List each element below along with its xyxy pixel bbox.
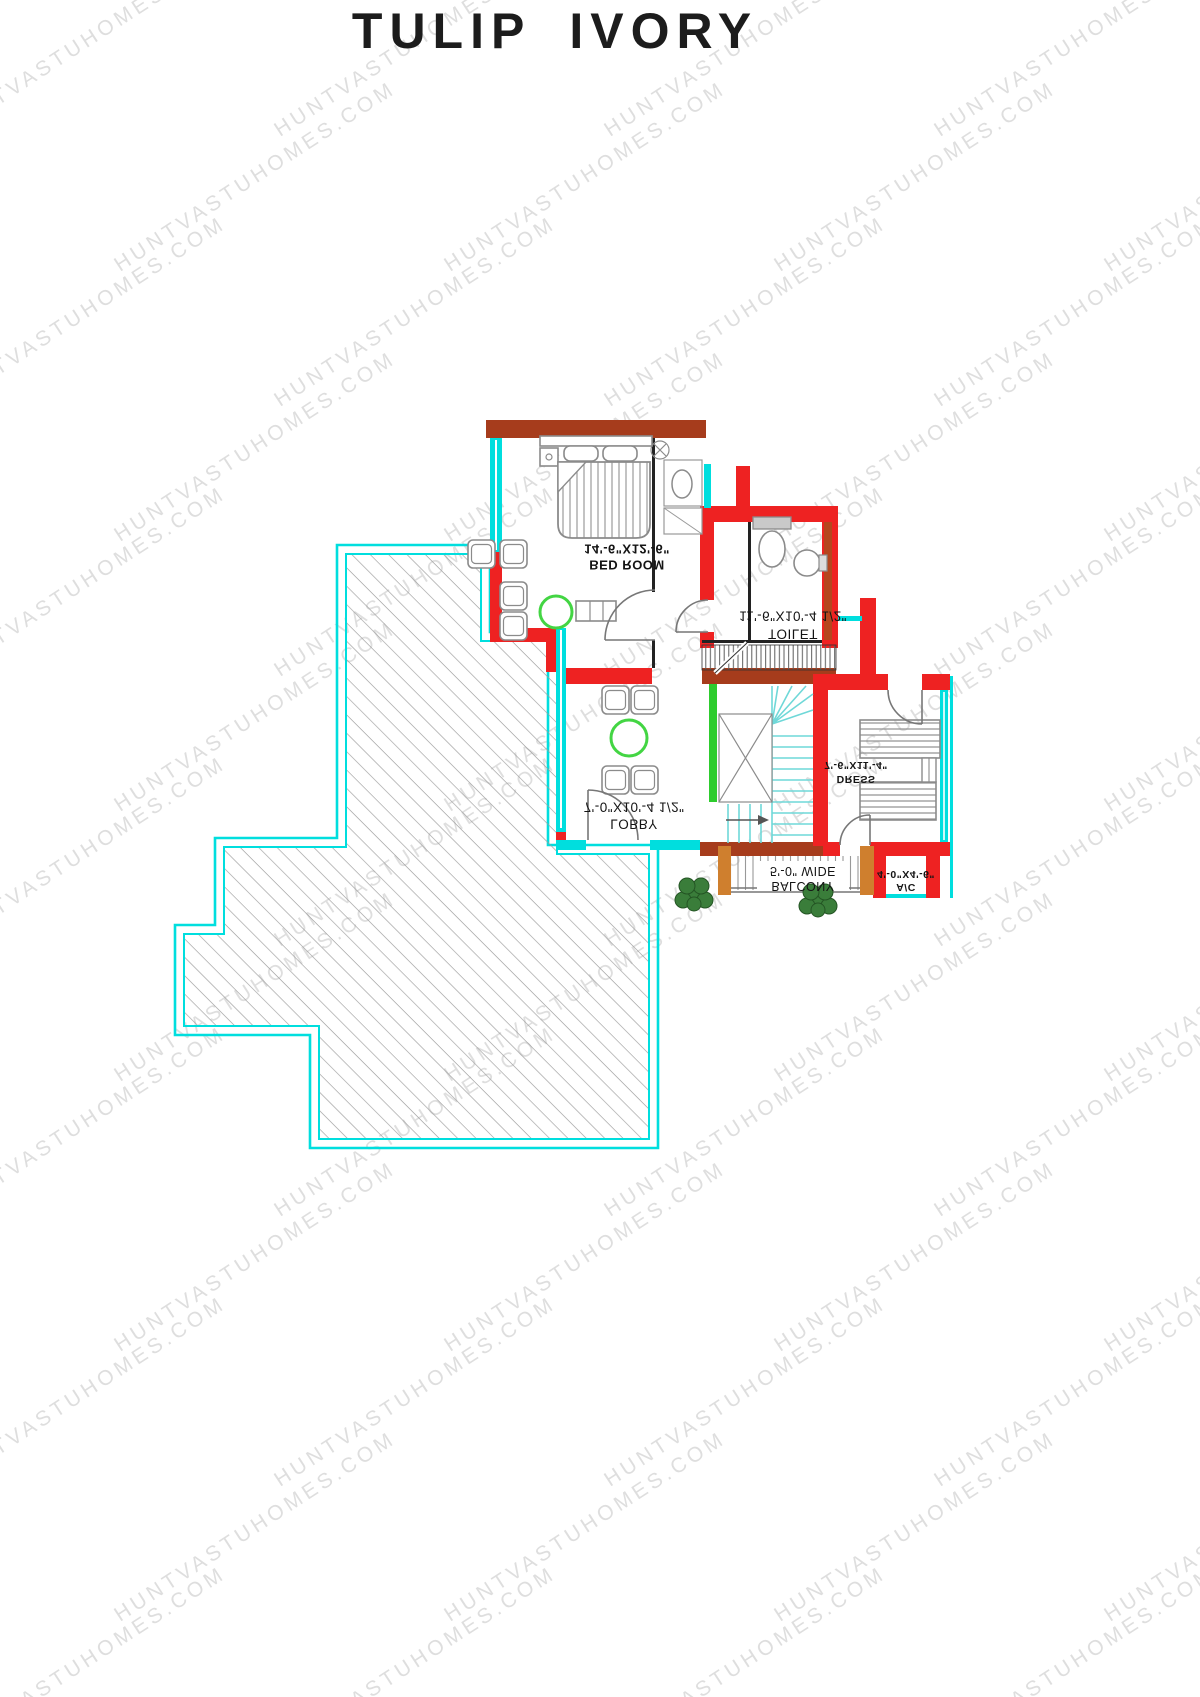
dress-dims-label: 7'-6"X11'-4" (824, 759, 888, 771)
balcony-post-right (860, 846, 874, 895)
pillow-right (603, 446, 637, 461)
floor-plan: 14'-6"X12'-6" BED ROOM 11'-6"X10'-4 1/2"… (0, 0, 1200, 1697)
ac-dims-label: 4'-0"X4'-6" (877, 868, 935, 880)
stair-winders (772, 686, 813, 724)
lobby-chair-4 (631, 766, 658, 794)
vanity-window (704, 464, 711, 508)
pillow-left (564, 446, 598, 461)
stair-green-strip (709, 684, 717, 802)
balcony-name-label: BALCONY (771, 879, 834, 893)
lobby-name-label: LOBBY (610, 817, 658, 832)
ceiling-fan-cross (654, 444, 666, 456)
bedroom-chair-1 (468, 540, 495, 568)
bedroom-round-table (540, 596, 572, 628)
dress-bottom-wall-left (823, 842, 840, 856)
bed-headboard (540, 436, 652, 446)
bedroom-dims-label: 14'-6"X12'-6" (584, 542, 670, 557)
vanity-wall-stub (736, 466, 750, 508)
basin-ledge (819, 555, 827, 571)
page: HUNTVASTUHOMES.COMHUNTVASTUHOMES.COMHUNT… (0, 0, 1200, 1697)
lobby-dims-label: 7'-0"X10'-4 1/2" (584, 800, 685, 815)
lobby-furniture (602, 686, 658, 794)
lobby-south-window-left (556, 840, 586, 850)
wc-tank (753, 517, 791, 529)
bedroom-chair-2 (500, 540, 527, 568)
lobby-top-wall (556, 668, 652, 684)
lobby-chair-3 (602, 766, 629, 794)
bedside-table-left (540, 448, 558, 466)
bedroom-name-label: BED ROOM (589, 558, 665, 573)
outer-boundary-line-right (950, 676, 953, 898)
dress-top-wall-right (922, 674, 950, 690)
lobby-south-window-right (650, 840, 700, 850)
wc-bowl (759, 531, 785, 567)
toilet-fixtures (753, 517, 827, 576)
bedroom-chair-3 (500, 582, 527, 610)
ac-bottom-line (886, 894, 926, 898)
toilet-door (676, 600, 708, 632)
toilet-basin (794, 550, 820, 576)
dress-name-label: DRESS (837, 773, 876, 785)
stair-arrow-head (758, 815, 769, 825)
stair-treads-vertical (728, 804, 761, 843)
bedroom-chair-4 (500, 612, 527, 640)
balcony-post-left (718, 846, 731, 895)
wardrobe-top (860, 720, 940, 758)
vanity-basin (672, 470, 692, 498)
lobby-chair-1 (602, 686, 629, 714)
toilet-dims-label: 11'-6"X10'-4 1/2" (739, 609, 847, 624)
wall-above-dress (860, 598, 876, 678)
wardrobe-bottom (860, 782, 936, 820)
toilet-name-label: TOILET (768, 627, 818, 642)
balcony-dims-label: 5'-0" WIDE (770, 864, 836, 878)
dress-door (888, 690, 922, 724)
bedroom-right-wall-lower (652, 640, 655, 668)
plant-icon-left (675, 878, 713, 911)
ac-name-label: A/C (896, 881, 916, 893)
stair-treads-horizontal (772, 736, 813, 835)
dress-top-wall-left (813, 674, 888, 690)
lobby-round-table (611, 720, 647, 756)
bedroom-furniture (468, 436, 702, 640)
lobby-chair-2 (631, 686, 658, 714)
